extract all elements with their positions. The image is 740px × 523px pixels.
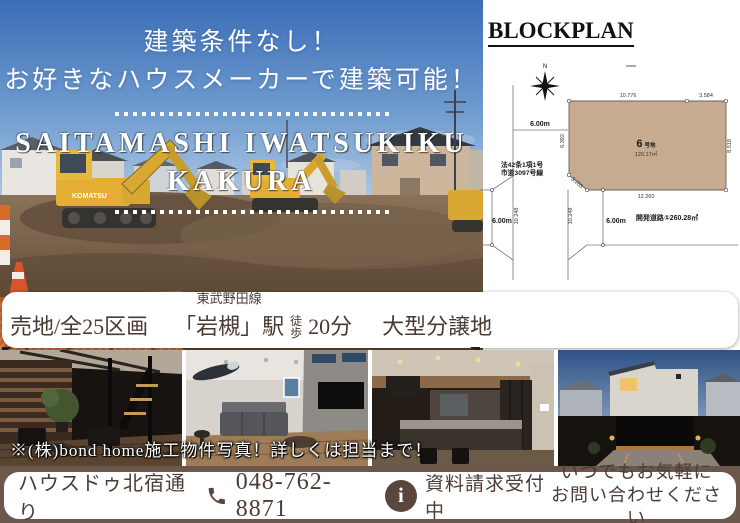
road-width-top: 6.00m: [530, 121, 550, 128]
contact-cta: いつでもお気軽に お問い合わせください: [551, 461, 722, 523]
station-name: 「岩槻」駅: [174, 314, 284, 339]
site-name-line2: KAKURA: [0, 166, 483, 198]
station-group: 東武野田線 「岩槻」駅: [174, 295, 284, 341]
example-photos-strip: ※(株)bond home施工物件写真！詳しくは担当まで！: [0, 350, 740, 466]
road-len-left: 10.248: [514, 208, 520, 225]
dim-bottom: 12.260: [638, 194, 655, 200]
contact-cta-line1: いつでもお気軽に: [560, 462, 712, 482]
photo-exterior: [558, 350, 740, 466]
phone-number: 048-762-8871: [236, 469, 369, 523]
photo-caption: ※(株)bond home施工物件写真！詳しくは担当まで！: [10, 436, 432, 461]
info-icon: i: [385, 480, 417, 512]
dim-top-right: 3.584: [699, 93, 713, 99]
dev-road-label: 開発道路①260.28㎡: [636, 213, 698, 222]
walk-label: 徒 歩: [290, 315, 302, 339]
road-note-line2: 市道3097号線: [501, 168, 544, 177]
lot-suffix: 号地: [645, 141, 657, 149]
property-info-band: 売地/全25区画 東武野田線 「岩槻」駅 徒 歩 20分 大型分譲地: [2, 292, 738, 348]
property-info-text: 売地/全25区画 東武野田線 「岩槻」駅 徒 歩 20分 大型分譲地: [10, 295, 492, 341]
headline-line1: 建築条件なし！: [0, 22, 483, 58]
request-label: 資料請求受付中: [425, 469, 551, 523]
footer-card: ハウスドゥ北宿通り 048-762-8871 i 資料請求受付中 いつでもお気軽…: [4, 472, 736, 519]
dim-right: 8.518: [727, 139, 733, 153]
blockplan-title: BLOCKPLAN: [488, 18, 634, 47]
road-note-line1: 法42条1項1号: [501, 160, 544, 169]
contact-cta-line2: お問い合わせください: [551, 485, 722, 523]
compass-icon: N: [530, 64, 560, 101]
footer: ハウスドゥ北宿通り 048-762-8871 i 資料請求受付中 いつでもお気軽…: [0, 466, 740, 523]
flyer-page: KOMATSU: [0, 0, 740, 523]
dotted-separator-top: [115, 112, 389, 116]
dim-left: 6.392: [560, 134, 566, 148]
lot-area: 120.17㎡: [635, 150, 658, 158]
phone-icon: [206, 484, 228, 508]
north-label: N: [543, 64, 547, 70]
walk-char-2: 歩: [290, 327, 302, 339]
dim-top-main: 10.776: [620, 93, 637, 99]
road-width-left: 6.00m: [492, 218, 512, 225]
site-name-line1: SAITAMASHI IWATSUKIKU: [0, 128, 483, 160]
headline-line2: お好きなハウスメーカーで建築可能！: [0, 60, 483, 96]
property-category: 大型分譲地: [382, 309, 492, 341]
road-len-center: 10.248: [568, 208, 574, 225]
shop-name: ハウスドゥ北宿通り: [18, 467, 188, 523]
lot-number: 6: [636, 138, 642, 150]
rail-line-label: 東武野田線: [174, 288, 284, 307]
sale-type: 売地/全25区画: [10, 309, 148, 341]
dotted-separator-bottom: [115, 210, 389, 214]
blockplan-diagram: N 10.776 3.584 6.392 3.203: [480, 55, 740, 300]
road-width-center: 6.00m: [606, 218, 626, 225]
walk-time: 20分: [308, 309, 352, 341]
